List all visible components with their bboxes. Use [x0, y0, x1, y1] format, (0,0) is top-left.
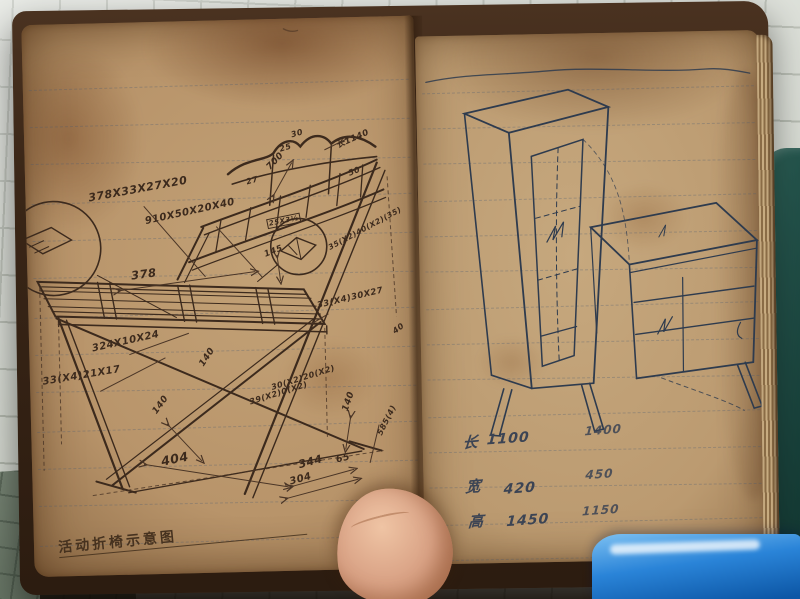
- dim-row-value2: 450: [585, 466, 614, 482]
- left-page: 378X33X27X20 910X50X20X40 378 700 长1140 …: [21, 16, 426, 577]
- dim-row-value: 1100: [486, 429, 530, 448]
- blue-object: [592, 534, 800, 599]
- dim-row-value: 1450: [506, 511, 550, 530]
- dim-row-value2: 1150: [582, 502, 620, 519]
- right-page: 长 1100 1400 宽 420 450 高 1450 1150: [415, 30, 769, 565]
- dim-row-value2: 1400: [584, 422, 622, 439]
- dim-row-label: 高: [468, 510, 484, 532]
- photo-notebook-scene: 378X33X27X20 910X50X20X40 378 700 长1140 …: [0, 0, 800, 599]
- dim-row-label: 长: [462, 431, 478, 453]
- dim-row-label: 宽: [465, 475, 481, 497]
- dim-row-value: 420: [503, 479, 536, 497]
